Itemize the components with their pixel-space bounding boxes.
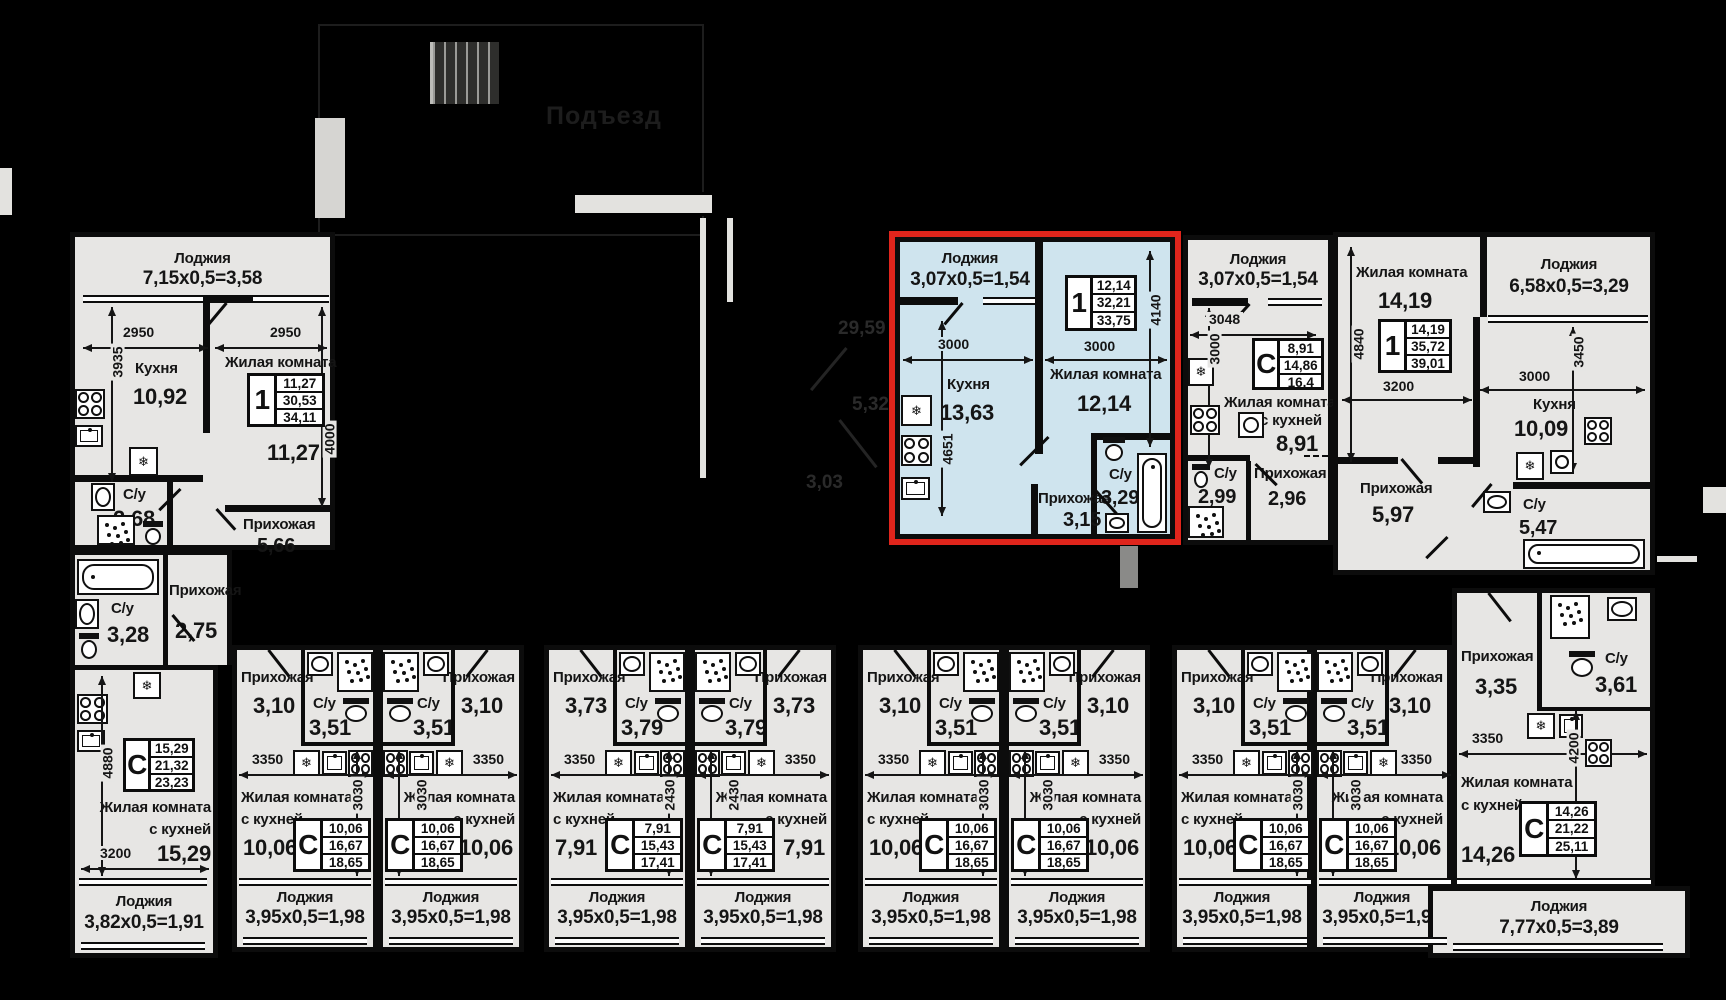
window <box>1323 937 1447 945</box>
wall <box>900 297 958 305</box>
area-value: 15,29 <box>157 842 211 866</box>
room-label: С/у <box>939 696 962 713</box>
dimension-value: 3000 <box>1516 369 1553 383</box>
loggia-dimension: 3,07х0,5=1,54 <box>900 270 1040 291</box>
info-value: 33,75 <box>1093 313 1134 328</box>
area-value: 10,06 <box>1085 836 1139 860</box>
wall <box>1241 650 1245 742</box>
info-box: С10,0616,6718,65 <box>1319 818 1397 872</box>
room-label: С/у <box>1043 696 1066 713</box>
fridge-icon: ❄ <box>1370 750 1397 776</box>
dimension-value: 4840 <box>1352 325 1366 362</box>
dimension-value: 3350 <box>1398 752 1435 766</box>
info-value: 16,67 <box>1263 838 1308 855</box>
dimension-value: 3350 <box>470 752 507 766</box>
dimension-line <box>1342 399 1472 401</box>
basin-icon <box>1105 513 1129 533</box>
info-box: С 15,29 21,32 23,23 <box>123 738 195 792</box>
room-label: Кухня <box>947 377 990 394</box>
shower-icon <box>963 652 999 692</box>
apartment-selected[interactable]: Лоджия 3,07х0,5=1,54 3000 Кухня 13,63 46… <box>889 231 1181 545</box>
window <box>239 878 371 886</box>
window <box>81 942 205 950</box>
window <box>983 297 1035 305</box>
window <box>79 878 207 886</box>
apartment-1room-topleft[interactable]: Лоджия 7,15х0,5=3,58 2950 2950 3935 4000… <box>70 232 335 550</box>
room-label: с кухней <box>149 822 211 839</box>
shower-icon <box>1550 595 1590 639</box>
door-leaf <box>810 347 848 391</box>
info-value: 16,67 <box>1041 838 1086 855</box>
loggia-label: Лоджия <box>237 890 373 907</box>
wall-fragment <box>1703 487 1726 513</box>
info-value: 10,06 <box>1263 821 1308 838</box>
dimension-value: 3000 <box>1208 330 1222 367</box>
info-value: 17,41 <box>635 855 680 870</box>
info-value: 23,23 <box>151 775 192 790</box>
info-box: С10,0616,6718,65 <box>1011 818 1089 872</box>
area-value: 2,99 <box>1198 486 1236 508</box>
wall <box>613 742 685 746</box>
room-label: С/у <box>625 696 648 713</box>
window <box>1268 298 1322 306</box>
room-label: С/у <box>313 696 336 713</box>
window <box>1488 315 1648 323</box>
info-box: С10,0616,6718,65 <box>293 818 371 872</box>
area-value: 3,51 <box>1347 716 1389 740</box>
toilet-icon <box>1011 698 1041 722</box>
loggia-dimension: 3,95х0,5=1,98 <box>695 908 831 929</box>
room-label: С/у <box>417 696 440 713</box>
basin-icon <box>735 652 761 676</box>
wall <box>927 742 999 746</box>
wall <box>1192 298 1248 306</box>
area-value: 3,79 <box>725 716 767 740</box>
sink-icon <box>634 751 659 775</box>
info-value: 10,06 <box>1349 821 1394 838</box>
wall <box>1480 237 1487 317</box>
basin-icon <box>75 599 99 629</box>
info-value: 14,19 <box>1407 322 1449 339</box>
info-type: 1 <box>250 376 277 424</box>
info-value: 16,67 <box>949 838 994 855</box>
info-value: 14,86 <box>1280 358 1321 375</box>
info-value: 39,01 <box>1407 356 1449 371</box>
area-value: 3,28 <box>107 623 149 647</box>
dimension-value: 3030 <box>1291 776 1305 813</box>
info-box: 1 11,27 30,53 34,11 <box>247 373 325 427</box>
dimension-line <box>1011 774 1143 776</box>
loggia-label: Лоджия <box>1009 890 1145 907</box>
wall <box>1385 650 1389 742</box>
area-value: 14,26 <box>1461 843 1515 867</box>
room-label: Жилая комната <box>1356 265 1467 282</box>
door-leaf <box>1425 536 1448 559</box>
window <box>243 937 367 945</box>
info-value: 35,72 <box>1407 339 1449 356</box>
loggia-label: Лоджия <box>383 890 519 907</box>
shower-icon <box>1277 652 1313 692</box>
fridge-icon: ❄ <box>1527 713 1555 739</box>
door-leaf <box>1487 592 1512 622</box>
loggia-label: Лоджия <box>695 890 831 907</box>
wall <box>1246 461 1251 540</box>
loggia-dimension: 6,58х0,5=3,29 <box>1488 277 1650 298</box>
basin-icon <box>933 652 959 676</box>
window <box>1183 937 1307 945</box>
stove-icon <box>901 435 932 466</box>
stove-icon <box>77 694 108 724</box>
info-value: 8,91 <box>1280 341 1321 358</box>
wall <box>1537 593 1542 711</box>
info-value: 10,06 <box>949 821 994 838</box>
info-value: 16,4 <box>1280 375 1321 390</box>
sink-icon <box>1035 751 1060 775</box>
wall <box>167 482 173 545</box>
dimension-line <box>1459 753 1647 755</box>
dimension-value: 3350 <box>249 752 286 766</box>
dimension-line <box>903 359 1033 361</box>
room-label: Жилая комната <box>100 800 211 817</box>
window <box>865 878 997 886</box>
toilet-icon <box>653 698 683 722</box>
info-type: С <box>1236 821 1263 869</box>
room-label: Жилая комната <box>867 790 978 807</box>
info-value: 16,67 <box>1349 838 1394 855</box>
room-label: Жилая комната <box>1224 395 1335 412</box>
basin-icon <box>91 483 115 511</box>
dimension-line <box>215 347 327 349</box>
room-label: С/у <box>1214 466 1237 483</box>
dimension-line <box>111 307 113 482</box>
area-value: 7,91 <box>783 836 825 860</box>
door-leaf <box>838 419 877 468</box>
window <box>1453 943 1663 951</box>
stove-icon <box>1585 739 1612 767</box>
dimension-value: 3350 <box>1469 731 1506 745</box>
info-value: 14,26 <box>1549 804 1594 821</box>
dashed-boundary <box>1304 455 1328 457</box>
loggia-label: Лоджия <box>1433 899 1685 916</box>
room-label: Жилая комната <box>1050 367 1161 384</box>
fridge-icon: ❄ <box>919 750 946 776</box>
wall <box>301 742 373 746</box>
info-box: С 14,26 21,22 25,11 <box>1519 801 1597 857</box>
toilet-icon <box>697 698 727 722</box>
wall-fragment <box>1657 556 1697 562</box>
window <box>1179 878 1311 886</box>
toilet-icon <box>385 698 415 722</box>
toilet-icon <box>1281 698 1311 722</box>
window <box>555 937 679 945</box>
toilet-icon <box>1101 437 1127 461</box>
area-value: 7,91 <box>555 836 597 860</box>
room-label: Прихожая <box>169 583 241 600</box>
wall <box>1513 482 1650 489</box>
apartment-studio-u9[interactable]: С/у 3,61 Прихожая 3,35 ❄ 3350 4200 Жилая… <box>1452 588 1655 886</box>
loggia-dimension: 3,07х0,5=1,54 <box>1188 270 1328 291</box>
fridge-icon: ❄ <box>1233 750 1260 776</box>
info-type: С <box>126 741 151 789</box>
info-value: 18,65 <box>1041 855 1086 870</box>
info-value: 17,41 <box>727 855 772 870</box>
dimension-line <box>83 347 208 349</box>
area-value: 3,10 <box>1087 694 1129 718</box>
info-box: С7,9115,4317,41 <box>697 818 775 872</box>
dimension-line <box>385 774 517 776</box>
wall <box>1438 457 1480 464</box>
area-value: 3,35 <box>1475 675 1517 699</box>
wall <box>1537 707 1650 711</box>
sink-icon <box>721 751 746 775</box>
floorplan-stage: Подъезд 29,59 5,32 3,03 Лоджия 7,15х0,5=… <box>0 0 1726 1000</box>
room-label: С/у <box>1523 497 1546 514</box>
room-label: Жилая комната <box>1181 790 1292 807</box>
shower-icon <box>337 652 373 692</box>
sink-icon <box>1262 751 1287 775</box>
info-box: 1 12,14 32,21 33,75 <box>1065 275 1137 331</box>
area-value: 10,06 <box>459 836 513 860</box>
fridge-icon: ❄ <box>293 750 320 776</box>
apartment-studio-u5[interactable]: Прихожая 3,10 С/у 3,51 ❄ 3350 3030 Жилая… <box>858 645 1004 952</box>
area-value: 3,15 <box>1063 509 1101 531</box>
info-value: 21,32 <box>151 758 192 775</box>
wall <box>1473 317 1480 467</box>
room-label: С/у <box>1605 651 1628 668</box>
room-label: Жилая комната <box>241 790 352 807</box>
window <box>551 878 683 886</box>
area-value: 3,51 <box>1039 716 1081 740</box>
toilet-icon <box>1319 698 1349 722</box>
loggia-dimension: 3,95х0,5=1,98 <box>863 908 999 929</box>
area-value: 10,92 <box>133 385 187 409</box>
area-value: 10,06 <box>1183 836 1237 860</box>
room-label: Прихожая <box>1461 649 1533 666</box>
dimension-value: 4140 <box>1149 291 1163 328</box>
basin-icon <box>1483 491 1511 513</box>
apartment-studio-left-top[interactable]: С/у 3,28 Прихожая 2,75 <box>70 550 232 665</box>
room-label: Прихожая <box>243 517 315 534</box>
bathtub-icon <box>77 559 159 595</box>
shower-icon <box>1188 506 1224 538</box>
fridge-icon: ❄ <box>605 750 632 776</box>
dimension-value: 2430 <box>663 776 677 813</box>
area-value: 3,10 <box>879 694 921 718</box>
room-label: С/у <box>111 601 134 618</box>
info-type: С <box>1322 821 1349 869</box>
area-value: 3,10 <box>461 694 503 718</box>
wall-fragment <box>575 192 712 216</box>
info-box: С7,9115,4317,41 <box>605 818 683 872</box>
loggia-label: Лоджия <box>900 251 1040 268</box>
wall <box>1031 484 1038 539</box>
shower-icon <box>649 652 685 692</box>
loggia-label: Лоджия <box>75 894 213 911</box>
sink-icon <box>901 477 930 500</box>
wall-fragment <box>700 218 706 478</box>
info-type: С <box>1014 821 1041 869</box>
sink-icon <box>75 425 103 447</box>
wall-fragment <box>727 218 733 302</box>
info-value: 15,29 <box>151 741 192 758</box>
stove-icon <box>75 389 105 419</box>
bathtub-icon <box>1137 453 1167 533</box>
info-value: 15,43 <box>727 838 772 855</box>
wall <box>1035 242 1043 454</box>
room-label: Жилая комната <box>1461 775 1572 792</box>
sink-icon <box>322 751 347 775</box>
apartment-studio-u3[interactable]: Прихожая 3,73 С/у 3,79 ❄ 3350 2430 Жилая… <box>544 645 690 952</box>
loggia-label: Лоджия <box>549 890 685 907</box>
dimension-value: 3350 <box>875 752 912 766</box>
window <box>697 878 829 886</box>
loggia-dimension: 3,95х0,5=1,98 <box>1009 908 1145 929</box>
info-value: 16,67 <box>323 838 368 855</box>
bathtub-icon <box>1523 539 1645 569</box>
loggia-label: Лоджия <box>1488 257 1650 274</box>
room-label: С/у <box>729 696 752 713</box>
info-value: 7,91 <box>727 821 772 838</box>
info-value: 30,53 <box>277 393 322 410</box>
room-label: Кухня <box>135 361 178 378</box>
dimension-value: 3030 <box>1041 776 1055 813</box>
wall-fragment <box>315 118 345 218</box>
apartment-studio-mid[interactable]: Лоджия 3,07х0,5=1,54 3048 3000 ❄ С 8,91 … <box>1183 235 1333 545</box>
dimension-line <box>697 774 829 776</box>
area-value: 3,10 <box>1193 694 1235 718</box>
area-value: 10,06 <box>243 836 297 860</box>
wall <box>695 742 767 746</box>
dimension-value: 3200 <box>97 846 134 860</box>
area-value: 5,66 <box>257 535 295 557</box>
wall <box>203 295 253 303</box>
fridge-icon: ❄ <box>1516 452 1544 480</box>
faint-dimension: 5,32 <box>852 394 889 416</box>
apartment-studio-u7[interactable]: Прихожая 3,10 С/у 3,51 ❄ 3350 3030 Жилая… <box>1172 645 1312 952</box>
area-value: 10,06 <box>869 836 923 860</box>
info-value: 10,06 <box>323 821 368 838</box>
dimension-line <box>1149 251 1151 447</box>
dimension-value: 4651 <box>941 430 955 467</box>
dimension-line <box>1045 359 1167 361</box>
room-label: Жилая комната <box>225 355 336 372</box>
wall <box>1188 455 1250 461</box>
wall <box>613 650 617 742</box>
loggia-dimension: 3,95х0,5=1,98 <box>237 908 373 929</box>
apartment-1room-topright[interactable]: Лоджия 6,58х0,5=3,29 Жилая комната 14,19… <box>1333 232 1655 575</box>
apartment-studio-u1[interactable]: Прихожая 3,10 С/у 3,51 ❄ 3350 3030 Жилая… <box>232 645 378 952</box>
wall <box>301 650 305 742</box>
room-label: с кухней <box>1461 798 1523 815</box>
window <box>83 295 203 303</box>
room-label: Кухня <box>1533 397 1576 414</box>
window <box>1015 937 1139 945</box>
shower-icon <box>1009 652 1045 692</box>
entrance-label: Подъезд <box>546 102 662 131</box>
info-type: С <box>296 821 323 869</box>
apartment-studio-u6[interactable]: Прихожая 3,10 С/у 3,51 ❄ 3350 3030 Жилая… <box>1004 645 1150 952</box>
window <box>385 878 517 886</box>
area-value: 5,97 <box>1372 503 1414 527</box>
info-value: 10,06 <box>415 821 460 838</box>
washer-icon <box>1238 412 1264 438</box>
dimension-value: 3350 <box>782 752 819 766</box>
window <box>701 937 825 945</box>
area-value: 12,14 <box>1077 392 1131 416</box>
window <box>1457 878 1651 886</box>
window <box>1011 878 1143 886</box>
area-value: 3,51 <box>413 716 455 740</box>
area-value: 11,27 <box>267 441 320 465</box>
area-value: 3,73 <box>773 694 815 718</box>
area-value: 3,10 <box>253 694 295 718</box>
dimension-value: 2950 <box>267 325 304 339</box>
apartment-studio-left[interactable]: ❄ 4880 С 15,29 21,32 23,23 Жилая комната… <box>70 665 218 958</box>
info-value: 12,14 <box>1093 278 1134 295</box>
wall <box>383 742 455 746</box>
area-value: 3,10 <box>1389 694 1431 718</box>
sink-icon <box>948 751 973 775</box>
info-value: 25,11 <box>1549 839 1594 854</box>
dimension-value: 4880 <box>101 744 115 781</box>
toilet-icon <box>77 633 101 659</box>
info-box: С10,0616,6718,65 <box>919 818 997 872</box>
apartment-studio-u4[interactable]: Прихожая 3,73 С/у 3,79 ❄ 3350 2430 Жилая… <box>690 645 836 952</box>
area-value: 14,19 <box>1378 289 1432 313</box>
room-label: С/у <box>1253 696 1276 713</box>
apartment-studio-u2[interactable]: Прихожая 3,10 С/у 3,51 ❄ 3350 3030 Жилая… <box>378 645 524 952</box>
dimension-value: 3030 <box>1349 776 1363 813</box>
basin-icon <box>1247 652 1273 676</box>
info-type: С <box>1522 804 1549 854</box>
sink-icon <box>409 751 434 775</box>
info-box: С 8,91 14,86 16,4 <box>1252 338 1324 390</box>
dimension-value: 3350 <box>1189 752 1226 766</box>
info-type: С <box>388 821 415 869</box>
wall <box>75 475 203 482</box>
wall <box>927 650 931 742</box>
info-value: 18,65 <box>415 855 460 870</box>
toilet-icon <box>1567 651 1597 677</box>
area-value: 3,73 <box>565 694 607 718</box>
window <box>253 295 329 303</box>
loggia-label: Лоджия <box>863 890 999 907</box>
dimension-value: 3935 <box>111 343 125 380</box>
basin-icon <box>1607 597 1637 621</box>
info-value: 16,67 <box>415 838 460 855</box>
dimension-value: 2950 <box>120 325 157 339</box>
info-box: С10,0616,6718,65 <box>1233 818 1311 872</box>
loggia-label: Лоджия <box>1177 890 1307 907</box>
wall <box>163 555 168 665</box>
loggia-label: Лоджия <box>75 251 330 268</box>
loggia-dimension: 3,95х0,5=1,98 <box>383 908 519 929</box>
area-value: 13,63 <box>940 401 994 425</box>
area-value: 3,61 <box>1595 673 1637 697</box>
shower-icon <box>383 652 419 692</box>
dimension-line <box>1319 774 1451 776</box>
info-value: 18,65 <box>323 855 368 870</box>
info-type: 1 <box>1381 322 1407 370</box>
fridge-icon: ❄ <box>901 395 932 426</box>
dimension-value: 4200 <box>1567 729 1581 766</box>
wall <box>1077 650 1081 742</box>
info-type: С <box>700 821 727 869</box>
info-value: 7,91 <box>635 821 680 838</box>
staircase <box>430 42 499 104</box>
wall-fragment <box>0 168 12 215</box>
shower-icon <box>695 652 731 692</box>
